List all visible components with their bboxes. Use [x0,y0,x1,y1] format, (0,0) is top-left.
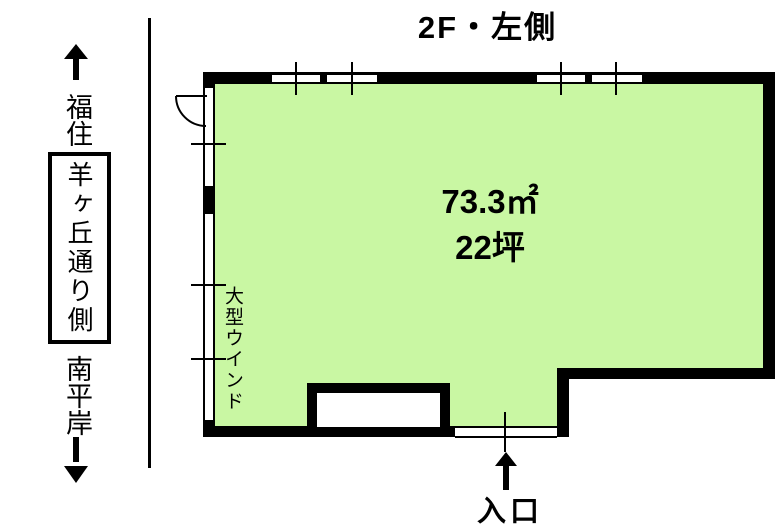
street-name-label: 羊ヶ丘通り側 [61,161,98,335]
door-swing-icon [168,88,212,132]
wall-bottom-right [557,368,775,379]
wall-left-bottom-corner [203,420,215,437]
area-label-block: 73.3㎡ 22坪 [390,179,590,271]
window-tick-icon [351,62,353,95]
entrance-opening [455,426,557,438]
left-window-lower [203,214,215,420]
window-tick-icon [191,143,226,145]
street-name-box: 羊ヶ丘通り側 [48,152,111,344]
wall-left-mid-segment [203,186,215,214]
wall-left-top-corner [203,72,215,88]
large-window-label: 大型ウインド [219,286,246,412]
down-arrow-icon [60,437,92,483]
south-direction-label: 南平岸 [57,354,97,436]
window-tick-icon [615,62,617,95]
area-tsubo: 22坪 [390,225,590,271]
page-title: 2F・左側 [200,2,775,47]
entrance-arrow-icon [493,452,519,490]
top-window-4 [592,75,642,82]
entrance-label: 入口 [455,488,565,524]
street-divider-line [148,18,151,468]
window-tick-icon [560,62,562,95]
window-tick-icon [295,62,297,95]
up-arrow-icon [60,44,92,80]
wall-right [763,72,775,379]
area-square-meters: 73.3㎡ [390,179,590,225]
entrance-tick-icon [504,412,506,452]
floor-plan-page: 2F・左側 福住 羊ヶ丘通り側 南平岸 大型ウインド [0,0,775,524]
inner-structure-box [307,383,450,437]
north-direction-label: 福住 [57,80,97,160]
